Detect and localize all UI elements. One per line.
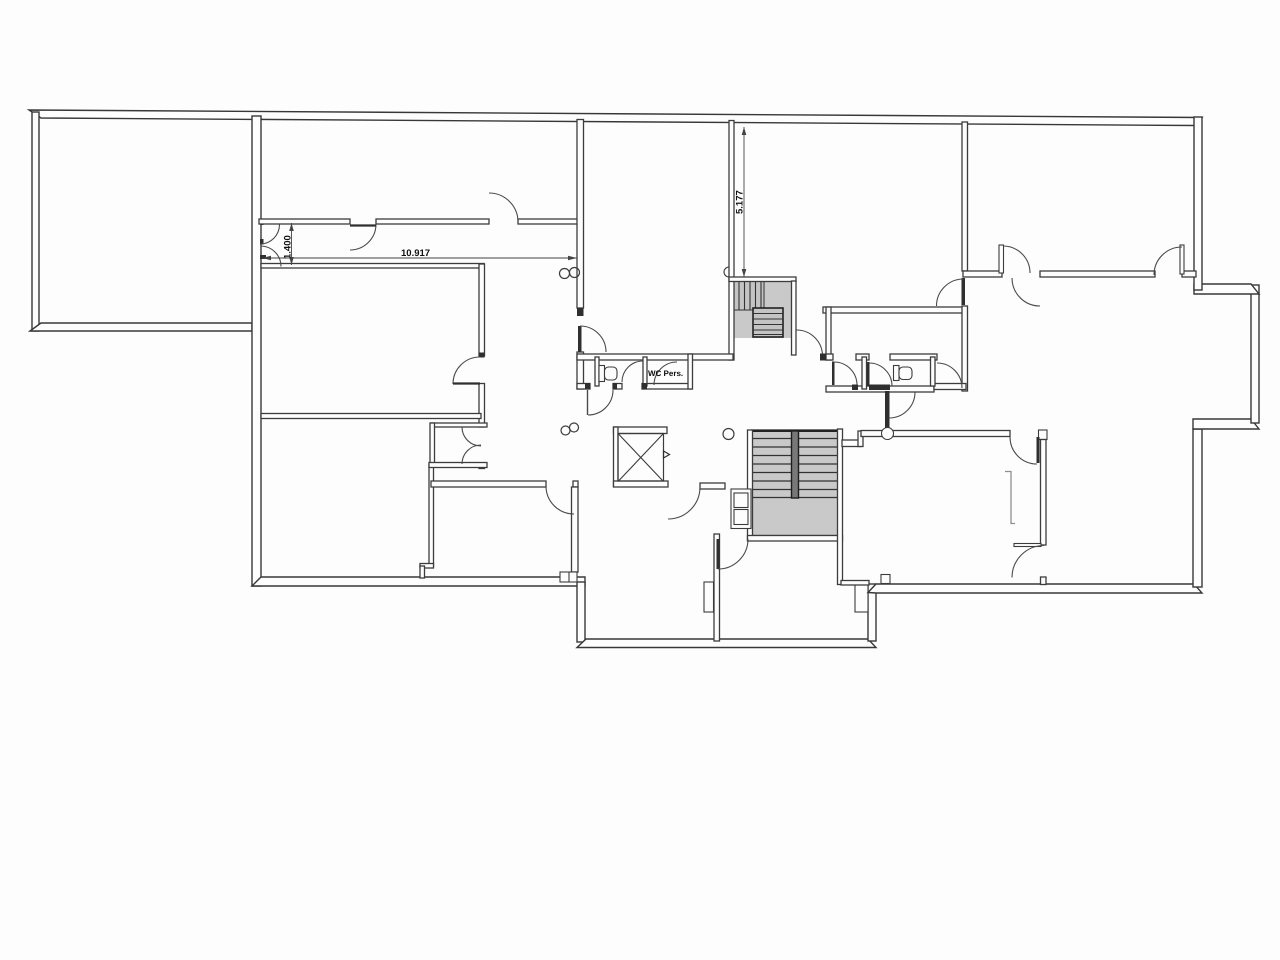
svg-text:1.400: 1.400 (283, 235, 294, 259)
svg-text:WC Pers.: WC Pers. (648, 369, 683, 378)
svg-text:10.917: 10.917 (401, 248, 430, 259)
svg-text:5.177: 5.177 (735, 190, 746, 214)
